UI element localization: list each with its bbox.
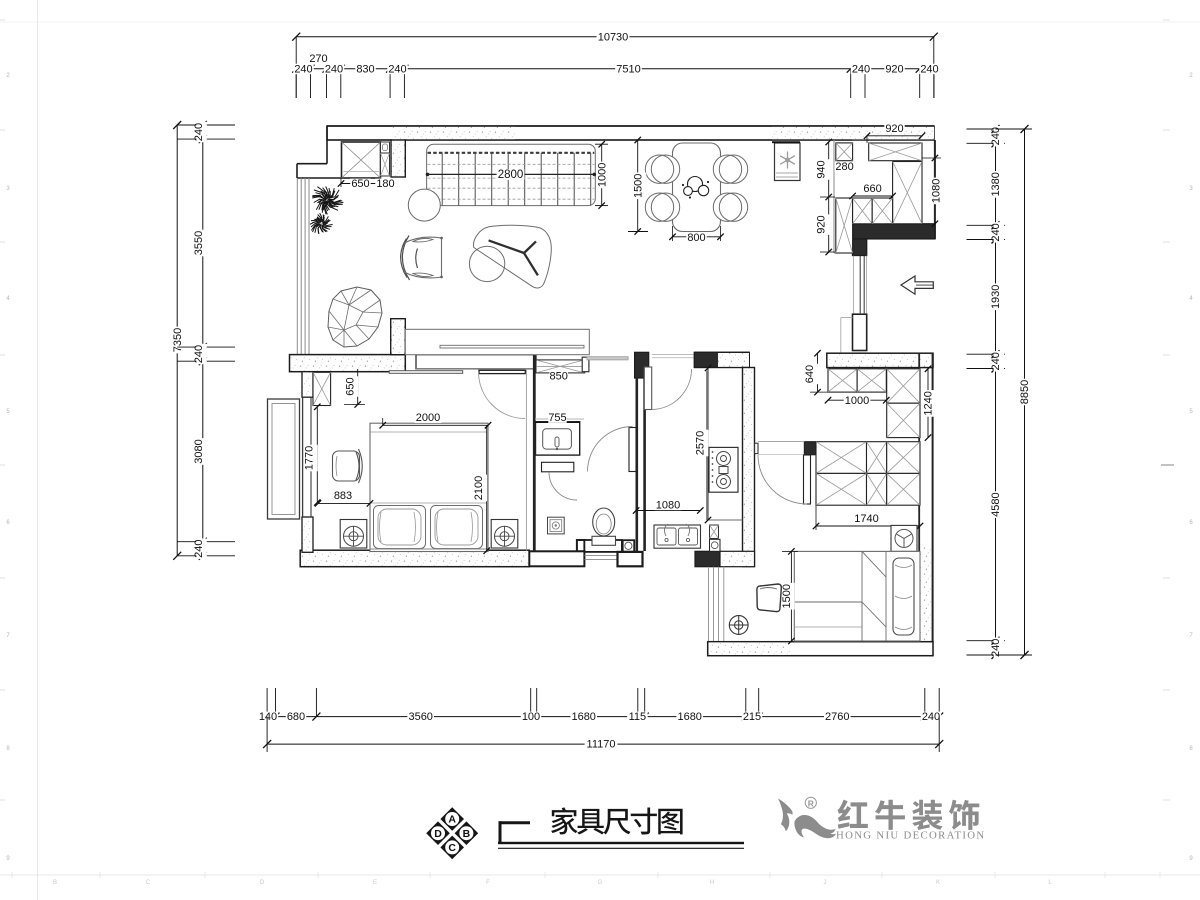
svg-text:1930: 1930 [990, 285, 1002, 309]
svg-text:F: F [486, 880, 490, 886]
svg-text:240: 240 [325, 63, 343, 75]
svg-text:180: 180 [376, 178, 394, 190]
svg-text:2100: 2100 [473, 476, 485, 500]
svg-text:10730: 10730 [598, 31, 629, 43]
svg-text:240: 240 [990, 127, 1002, 145]
svg-text:4580: 4580 [990, 492, 1002, 516]
svg-text:100: 100 [522, 711, 540, 723]
svg-text:E: E [373, 880, 377, 886]
svg-text:1500: 1500 [781, 584, 793, 608]
svg-text:640: 640 [804, 365, 816, 383]
svg-text:755: 755 [548, 412, 566, 424]
svg-text:B: B [53, 880, 57, 886]
svg-text:3550: 3550 [193, 231, 205, 255]
svg-text:680: 680 [287, 711, 305, 723]
svg-text:1500: 1500 [632, 174, 644, 198]
svg-text:7350: 7350 [172, 328, 184, 352]
svg-text:240: 240 [294, 63, 312, 75]
svg-text:1000: 1000 [845, 395, 869, 407]
svg-text:C: C [448, 842, 456, 854]
svg-text:R: R [808, 799, 814, 809]
svg-text:1770: 1770 [304, 446, 316, 470]
svg-text:8850: 8850 [1019, 380, 1031, 404]
svg-text:1740: 1740 [854, 513, 878, 525]
svg-text:3560: 3560 [408, 711, 432, 723]
svg-text:1080: 1080 [930, 179, 942, 203]
svg-text:240: 240 [990, 352, 1002, 370]
svg-text:3080: 3080 [193, 439, 205, 463]
svg-text:215: 215 [743, 711, 761, 723]
svg-text:D: D [260, 880, 265, 886]
svg-text:HONG NIU DECORATION: HONG NIU DECORATION [836, 830, 985, 842]
svg-text:650: 650 [351, 178, 369, 190]
svg-text:1080: 1080 [656, 499, 680, 511]
svg-text:940: 940 [816, 160, 828, 178]
svg-text:240: 240 [922, 711, 940, 723]
svg-text:1680: 1680 [571, 711, 595, 723]
svg-text:J: J [824, 880, 827, 886]
svg-text:2760: 2760 [825, 711, 849, 723]
svg-text:280: 280 [835, 161, 853, 173]
svg-text:2570: 2570 [694, 431, 706, 455]
svg-text:240: 240 [388, 63, 406, 75]
svg-text:240: 240 [193, 123, 205, 141]
svg-text:1240: 1240 [923, 391, 935, 415]
svg-text:830: 830 [356, 63, 374, 75]
svg-text:C: C [146, 880, 151, 886]
svg-text:D: D [434, 828, 442, 840]
svg-text:240: 240 [990, 639, 1002, 657]
svg-text:B: B [463, 828, 471, 840]
svg-text:850: 850 [550, 371, 568, 383]
svg-text:A: A [448, 814, 456, 826]
svg-text:2800: 2800 [498, 169, 524, 181]
svg-text:240: 240 [920, 63, 938, 75]
svg-text:240: 240 [193, 345, 205, 363]
svg-text:H: H [710, 880, 714, 886]
svg-text:240: 240 [852, 63, 870, 75]
svg-text:140: 140 [259, 711, 277, 723]
svg-text:650: 650 [344, 377, 356, 395]
svg-text:2000: 2000 [416, 412, 440, 424]
svg-text:240: 240 [193, 540, 205, 558]
svg-text:883: 883 [334, 490, 352, 502]
svg-text:800: 800 [687, 232, 705, 244]
svg-text:240: 240 [990, 223, 1002, 241]
svg-text:K: K [936, 880, 940, 886]
svg-text:G: G [598, 880, 603, 886]
svg-text:660: 660 [863, 183, 881, 195]
svg-text:1000: 1000 [596, 163, 608, 187]
svg-text:1680: 1680 [677, 711, 701, 723]
svg-text:1380: 1380 [990, 172, 1002, 196]
svg-text:11170: 11170 [587, 739, 616, 751]
svg-text:7510: 7510 [616, 63, 640, 75]
svg-text:920: 920 [816, 215, 828, 233]
svg-text:115: 115 [629, 711, 647, 723]
svg-text:920: 920 [885, 63, 903, 75]
svg-text:920: 920 [885, 123, 903, 135]
